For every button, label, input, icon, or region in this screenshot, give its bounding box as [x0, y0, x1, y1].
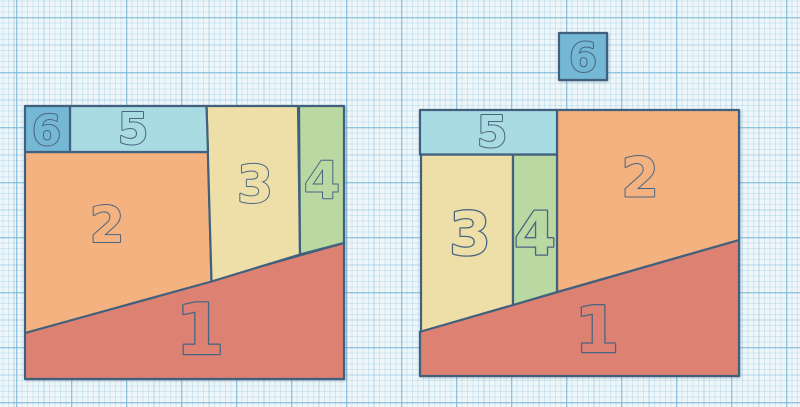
left-arrangement-piece-5-label: 5 — [118, 104, 149, 155]
right-arrangement-piece-5-label: 5 — [477, 107, 508, 158]
left-arrangement-piece-4-label: 4 — [304, 152, 340, 212]
right-arrangement-piece-6-label: 6 — [569, 35, 597, 81]
left-arrangement-piece-1-label: 1 — [176, 289, 225, 371]
left-arrangement: 123456 — [25, 104, 344, 379]
right-arrangement-piece-1-label: 1 — [575, 294, 620, 368]
right-arrangement-piece-2-label: 2 — [621, 146, 659, 209]
right-arrangement: 123456 — [420, 33, 739, 376]
left-arrangement-piece-6-label: 6 — [32, 106, 61, 155]
left-arrangement-piece-3-label: 3 — [237, 156, 273, 216]
right-arrangement-piece-3-label: 3 — [449, 200, 491, 270]
graph-paper-canvas: 123456123456 — [0, 0, 800, 407]
puzzle-scene: 123456123456 — [0, 0, 800, 407]
right-arrangement-piece-4-label: 4 — [514, 200, 556, 270]
left-arrangement-piece-2-label: 2 — [90, 196, 125, 254]
